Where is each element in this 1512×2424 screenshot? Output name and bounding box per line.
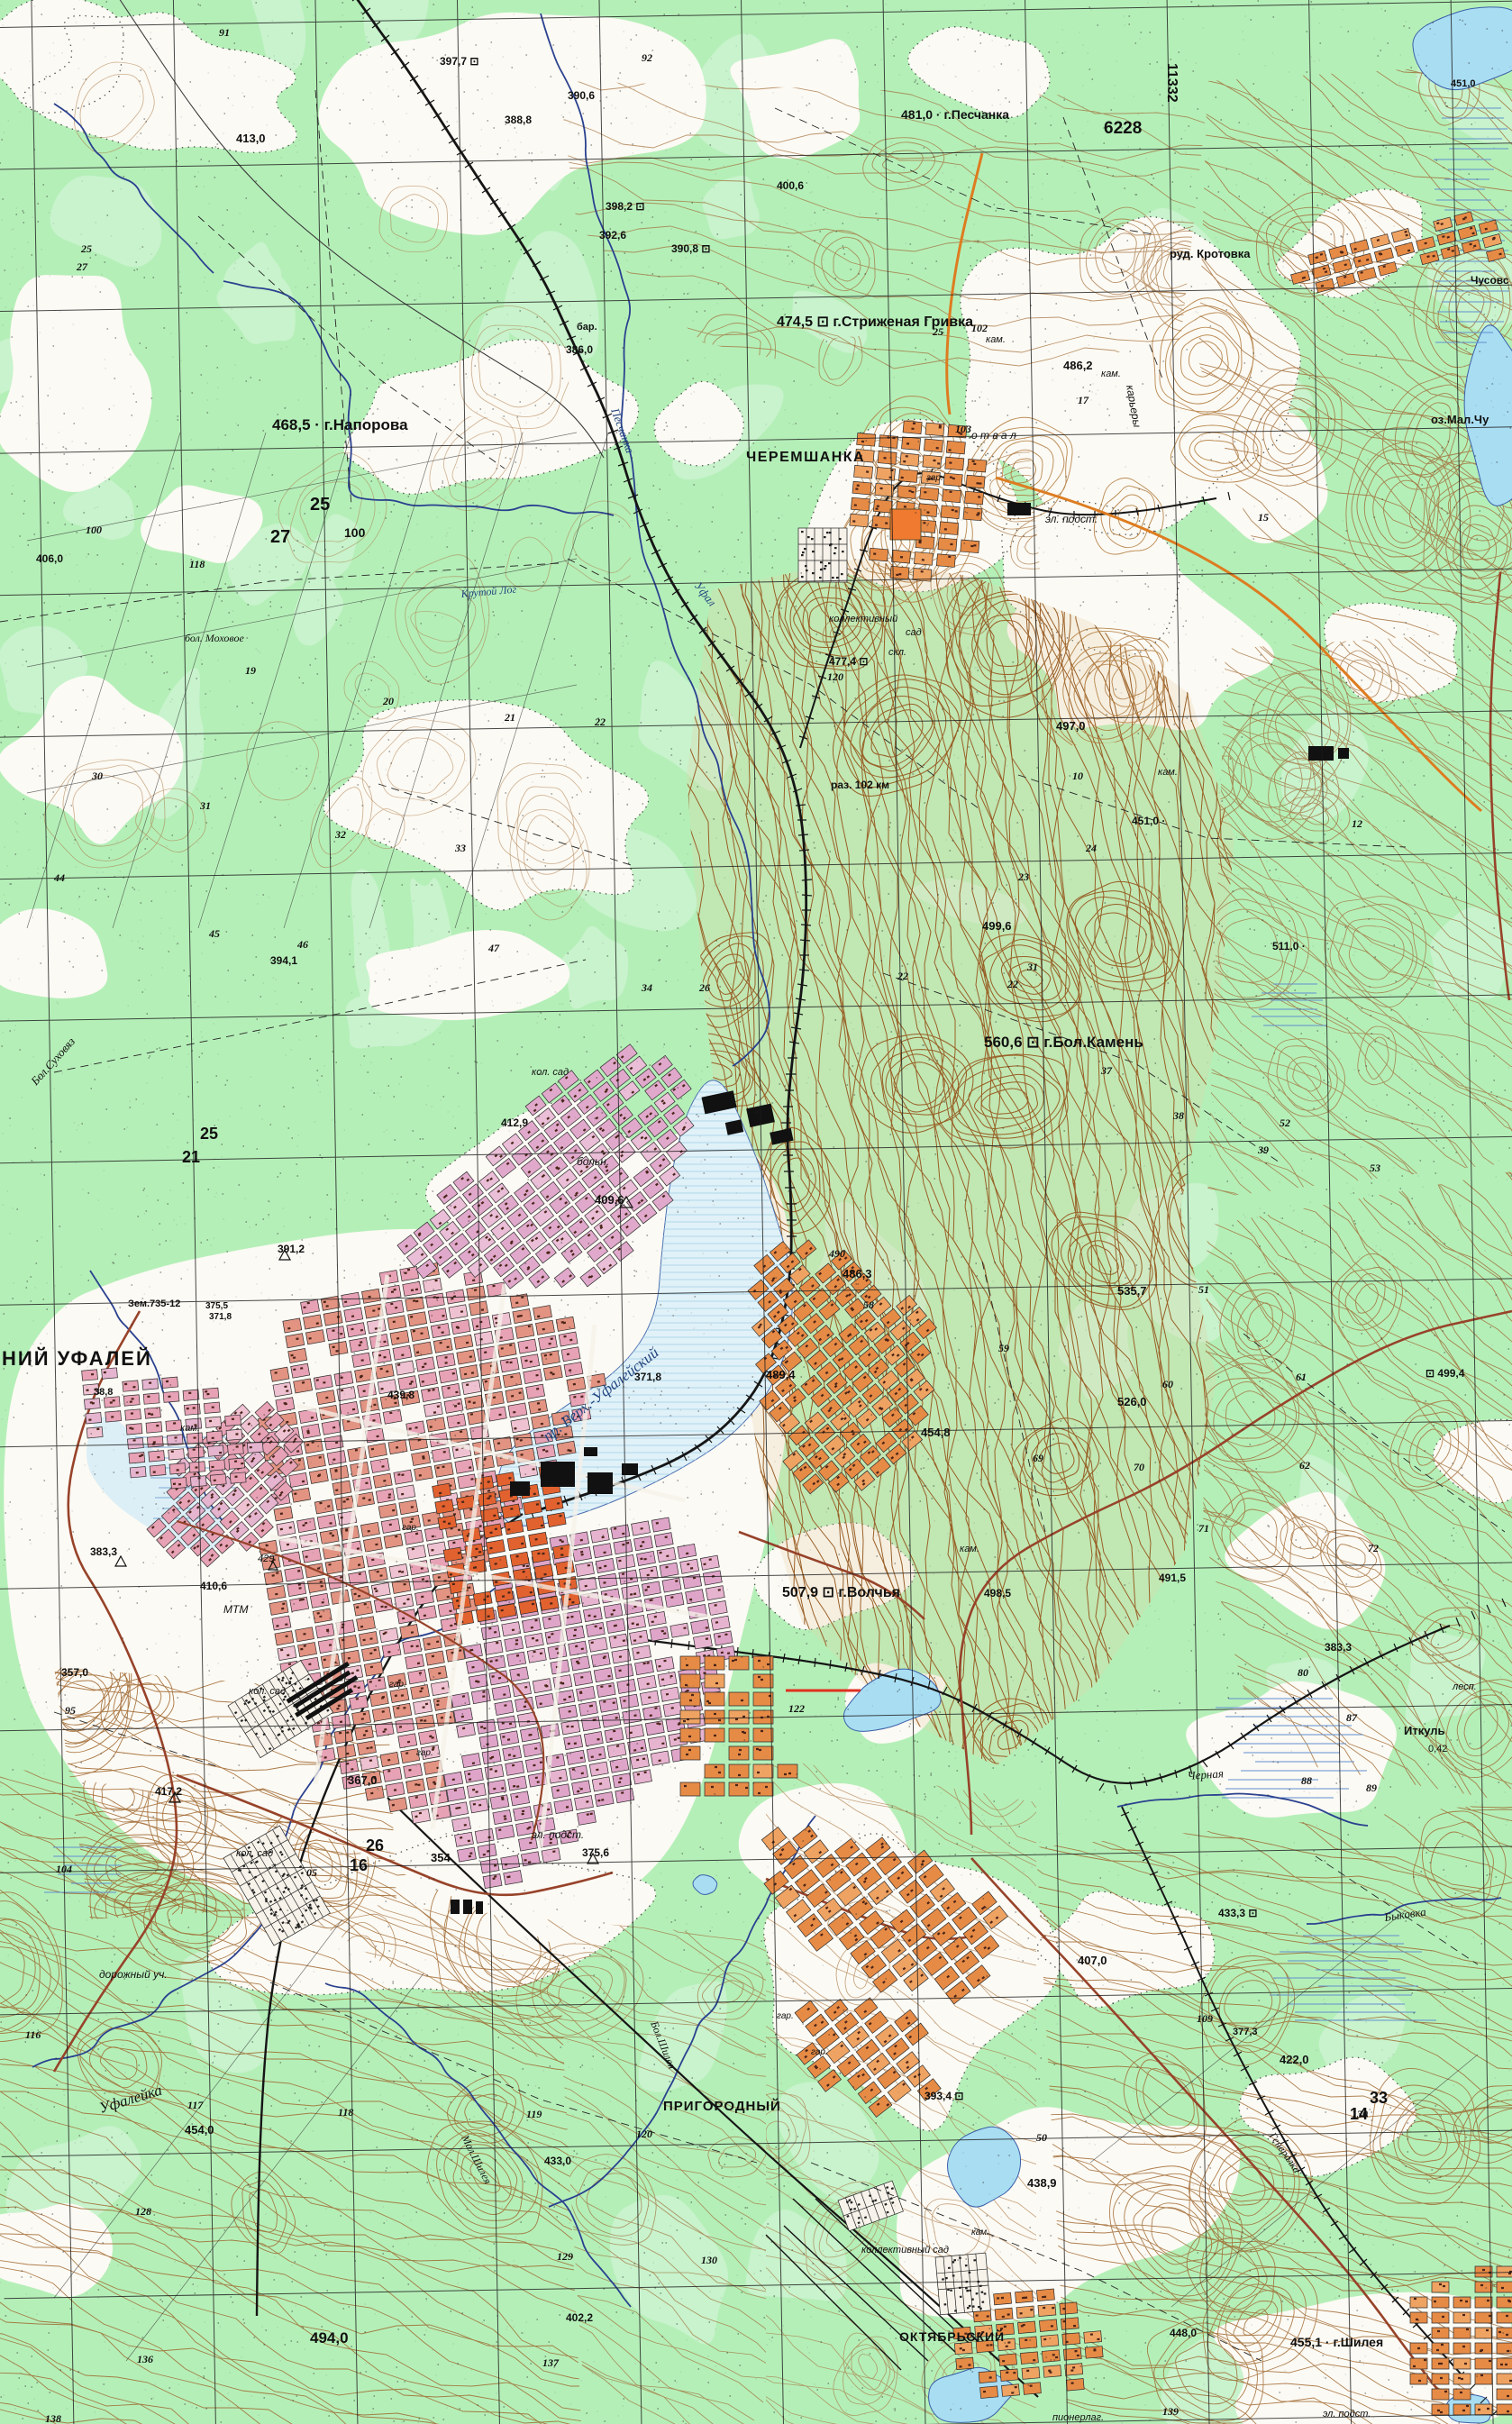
svg-text:95: 95 [65,1704,76,1717]
svg-text:116: 116 [25,2028,41,2041]
svg-text:367,0: 367,0 [348,1773,378,1787]
svg-text:397,7 ⊡: 397,7 ⊡ [440,55,478,68]
svg-text:91: 91 [219,26,230,39]
svg-text:бар.: бар. [577,322,597,333]
svg-text:эл. подст.: эл. подст. [1045,513,1098,525]
svg-text:37: 37 [1100,1064,1113,1077]
svg-text:47: 47 [487,942,500,954]
svg-text:26: 26 [366,1836,384,1854]
svg-text:кол. сад: кол. сад [249,1686,286,1697]
svg-text:390,6: 390,6 [568,89,595,102]
svg-text:535,7: 535,7 [1117,1284,1147,1298]
svg-text:454,8: 454,8 [921,1426,951,1439]
svg-text:раз. 102 км: раз. 102 км [831,779,889,791]
svg-text:58: 58 [863,1299,874,1311]
svg-text:27: 27 [270,527,290,547]
svg-text:410,6: 410,6 [200,1580,227,1592]
svg-text:451,0 ·: 451,0 · [1132,815,1165,827]
svg-text:кам.: кам. [971,2228,989,2237]
svg-text:400,6: 400,6 [777,179,804,192]
svg-text:гар.: гар. [926,473,943,483]
svg-text:Иткуль: Иткуль [1404,1724,1445,1737]
svg-text:21: 21 [504,711,515,724]
svg-text:24: 24 [1085,842,1097,854]
svg-text:бол. Моховое: бол. Моховое [185,632,244,644]
svg-text:417,2: 417,2 [155,1785,182,1798]
svg-text:498,5: 498,5 [984,1587,1011,1599]
svg-text:383,3: 383,3 [1325,1641,1352,1654]
svg-text:386,0: 386,0 [566,343,593,356]
svg-text:413,0: 413,0 [236,132,266,145]
svg-text:22: 22 [897,970,908,982]
svg-text:70: 70 [1134,1461,1144,1473]
svg-text:433,3 ⊡: 433,3 ⊡ [1218,1907,1257,1919]
svg-text:388,8: 388,8 [505,114,532,126]
svg-text:кам.: кам. [1158,767,1178,778]
svg-text:коллективный: коллективный [829,614,897,624]
svg-text:402,2: 402,2 [566,2311,593,2324]
svg-text:128: 128 [135,2205,151,2218]
svg-text:дорожный уч.: дорожный уч. [99,1968,168,1981]
svg-text:26: 26 [698,981,710,994]
svg-text:69: 69 [1033,1452,1043,1464]
svg-text:руд. Кротовка: руд. Кротовка [1170,247,1251,260]
svg-text:31: 31 [1026,961,1038,973]
svg-text:392,6: 392,6 [599,229,626,241]
svg-text:80: 80 [1298,1666,1308,1679]
svg-text:371,8: 371,8 [209,1312,232,1322]
svg-text:89: 89 [1366,1782,1377,1794]
svg-text:10: 10 [1072,770,1083,782]
svg-text:39: 39 [1257,1144,1269,1156]
svg-text:375,6: 375,6 [582,1846,609,1859]
svg-text:пионерлаг.: пионерлаг. [1052,2412,1104,2423]
svg-text:72: 72 [1368,1542,1379,1554]
svg-text:130: 130 [701,2254,717,2266]
svg-text:390,8 ⊡: 390,8 ⊡ [671,242,710,255]
svg-text:эл. подст.: эл. подст. [532,1828,584,1841]
svg-text:92: 92 [642,51,652,64]
svg-text:87: 87 [1346,1711,1358,1724]
svg-text:05: 05 [306,1866,317,1879]
svg-text:398,2 ⊡: 398,2 ⊡ [606,200,644,213]
svg-text:гар.: гар. [416,1748,433,1758]
svg-text:439,8: 439,8 [387,1389,414,1401]
svg-text:117: 117 [187,2099,204,2111]
svg-text:429: 429 [258,1554,274,1564]
svg-text:138: 138 [45,2412,61,2424]
svg-text:489,4: 489,4 [766,1368,796,1381]
svg-text:383,3: 383,3 [90,1545,117,1558]
svg-text:486,3: 486,3 [843,1267,872,1280]
svg-text:лесп.: лесп. [1452,1681,1477,1692]
svg-text:гар.: гар. [811,2047,828,2057]
svg-text:61: 61 [1296,1371,1307,1383]
svg-text:6228: 6228 [1104,119,1142,138]
svg-text:412,9: 412,9 [501,1116,528,1129]
svg-text:394,1: 394,1 [270,954,297,967]
svg-text:560,6 ⊡ г.Бол.Камень: 560,6 ⊡ г.Бол.Камень [984,1034,1143,1051]
svg-text:499,6: 499,6 [982,919,1012,933]
svg-text:491,5: 491,5 [1159,1572,1186,1584]
svg-text:406,0: 406,0 [36,552,63,565]
svg-text:100: 100 [86,524,102,536]
svg-text:490: 490 [828,1247,845,1260]
svg-text:526,0: 526,0 [1117,1395,1147,1408]
svg-text:109: 109 [1197,2012,1213,2025]
svg-text:16: 16 [350,1856,368,1874]
svg-text:23: 23 [1017,870,1029,883]
svg-text:44: 44 [53,871,65,884]
svg-text:60: 60 [1162,1378,1173,1390]
svg-text:сад: сад [906,627,922,638]
svg-text:507,9 ⊡ г.Волчья: 507,9 ⊡ г.Волчья [782,1585,900,1600]
svg-text:409,6: 409,6 [595,1193,624,1207]
svg-text:0,42: 0,42 [1428,1744,1447,1754]
svg-text:118: 118 [338,2106,353,2119]
svg-text:511,0 ·: 511,0 · [1272,940,1306,952]
svg-text:14: 14 [1350,2105,1368,2123]
svg-text:гар.: гар. [402,1523,419,1533]
svg-text:25: 25 [932,325,943,338]
svg-text:357,0: 357,0 [61,1666,88,1679]
svg-text:кам.: кам. [1101,369,1121,379]
svg-text:кам.: кам. [986,334,1006,345]
svg-text:46: 46 [296,938,308,951]
svg-text:474,5 ⊡ г.Стриженая Гривка: 474,5 ⊡ г.Стриженая Гривка [777,314,973,330]
svg-text:38: 38 [1172,1109,1184,1122]
svg-text:393,4 ⊡: 393,4 ⊡ [925,2090,963,2102]
svg-text:120: 120 [827,670,843,683]
svg-text:51: 51 [1198,1283,1209,1296]
svg-text:455,1 · г.Шилея: 455,1 · г.Шилея [1290,2335,1383,2349]
svg-text:71: 71 [1198,1522,1209,1535]
svg-text:Черная: Черная [1187,1766,1224,1782]
svg-text:ПРИГОРОДНЫЙ: ПРИГОРОДНЫЙ [663,2098,781,2114]
svg-text:53: 53 [1370,1162,1380,1174]
svg-text:ОКТЯБРЬСКИЙ: ОКТЯБРЬСКИЙ [899,2328,1005,2344]
svg-text:136: 136 [137,2353,153,2365]
svg-text:438,9: 438,9 [1027,2176,1057,2190]
svg-text:25: 25 [310,495,330,515]
svg-text:кам.: кам. [180,1423,200,1434]
svg-text:скл.: скл. [888,647,906,658]
svg-text:497,0: 497,0 [1056,719,1086,733]
svg-text:354: 354 [431,1851,451,1864]
svg-text:375,5: 375,5 [205,1301,228,1311]
svg-text:448,0: 448,0 [1170,2327,1197,2339]
svg-text:391,2: 391,2 [278,1243,305,1255]
svg-text:кам.: кам. [960,1544,979,1554]
svg-text:эл. подст.: эл. подст. [1323,2409,1371,2419]
svg-text:30: 30 [91,770,103,782]
svg-text:25: 25 [80,242,92,255]
svg-text:100: 100 [344,525,366,540]
svg-text:137: 137 [542,2356,560,2369]
svg-text:103: 103 [955,423,971,435]
svg-text:486,2: 486,2 [1063,359,1093,372]
svg-text:33: 33 [1370,2089,1388,2107]
svg-text:454,0: 454,0 [185,2123,214,2137]
svg-text:МТМ: МТМ [223,1603,248,1616]
svg-text:гар.: гар. [777,2011,794,2021]
svg-text:15: 15 [1258,511,1269,524]
svg-text:120: 120 [636,2128,652,2140]
svg-text:377,3: 377,3 [1233,2027,1258,2037]
svg-text:494,0: 494,0 [310,2329,349,2347]
svg-text:31: 31 [199,799,211,812]
svg-text:12: 12 [1352,817,1362,830]
svg-text:11332: 11332 [1164,63,1180,103]
svg-text:104: 104 [56,1863,72,1875]
svg-text:22: 22 [1006,978,1018,990]
svg-text:481,0 · г.Песчанка: 481,0 · г.Песчанка [901,107,1009,122]
svg-text:38,8: 38,8 [94,1387,113,1398]
svg-text:118: 118 [189,558,205,570]
svg-text:НИЙ УФАЛЕЙ: НИЙ УФАЛЕЙ [2,1347,152,1370]
svg-text:34: 34 [641,981,652,994]
svg-text:ЧЕРЕМШАНКА: ЧЕРЕМШАНКА [746,450,865,465]
svg-text:139: 139 [1162,2405,1179,2418]
svg-text:гар.: гар. [389,1680,406,1690]
svg-text:59: 59 [998,1342,1009,1354]
svg-text:451,0: 451,0 [1451,78,1476,89]
svg-text:45: 45 [208,927,220,940]
svg-text:422,0: 422,0 [1280,2053,1309,2066]
svg-text:21: 21 [182,1148,200,1166]
svg-text:32: 32 [334,828,346,841]
svg-text:20: 20 [382,695,394,707]
svg-text:коллективный сад: коллективный сад [861,2245,949,2255]
svg-text:407,0: 407,0 [1078,1954,1107,1967]
svg-text:19: 19 [245,664,256,677]
svg-text:371,8: 371,8 [634,1371,661,1383]
svg-text:кол. сад: кол. сад [236,1848,273,1859]
svg-text:50: 50 [1036,2131,1047,2144]
svg-text:33: 33 [454,842,466,854]
svg-text:Зем.735-12: Зем.735-12 [128,1299,180,1309]
svg-text:кол. сад: кол. сад [532,1067,569,1078]
svg-text:129: 129 [557,2250,573,2263]
svg-text:102: 102 [971,322,988,334]
svg-text:больн.: больн. [577,1155,609,1168]
svg-text:477,4 ⊡: 477,4 ⊡ [829,655,868,668]
svg-text:433,0: 433,0 [544,2155,571,2167]
svg-text:27: 27 [76,260,88,273]
svg-text:52: 52 [1280,1116,1290,1129]
svg-text:25: 25 [200,1125,218,1143]
svg-text:17: 17 [1078,394,1089,406]
svg-text:119: 119 [526,2108,542,2120]
svg-text:88: 88 [1301,1774,1312,1787]
svg-text:Чусовс: Чусовс [1471,274,1509,287]
svg-text:62: 62 [1299,1459,1310,1472]
svg-text:22: 22 [594,715,606,728]
svg-text:⊡ 499,4: ⊡ 499,4 [1425,1367,1465,1380]
svg-text:о т в а л: о т в а л [971,429,1016,442]
svg-text:468,5 · г.Напорова: 468,5 · г.Напорова [272,416,408,433]
svg-text:122: 122 [788,1702,805,1715]
svg-text:оз.Мал.Чу: оз.Мал.Чу [1431,413,1489,426]
